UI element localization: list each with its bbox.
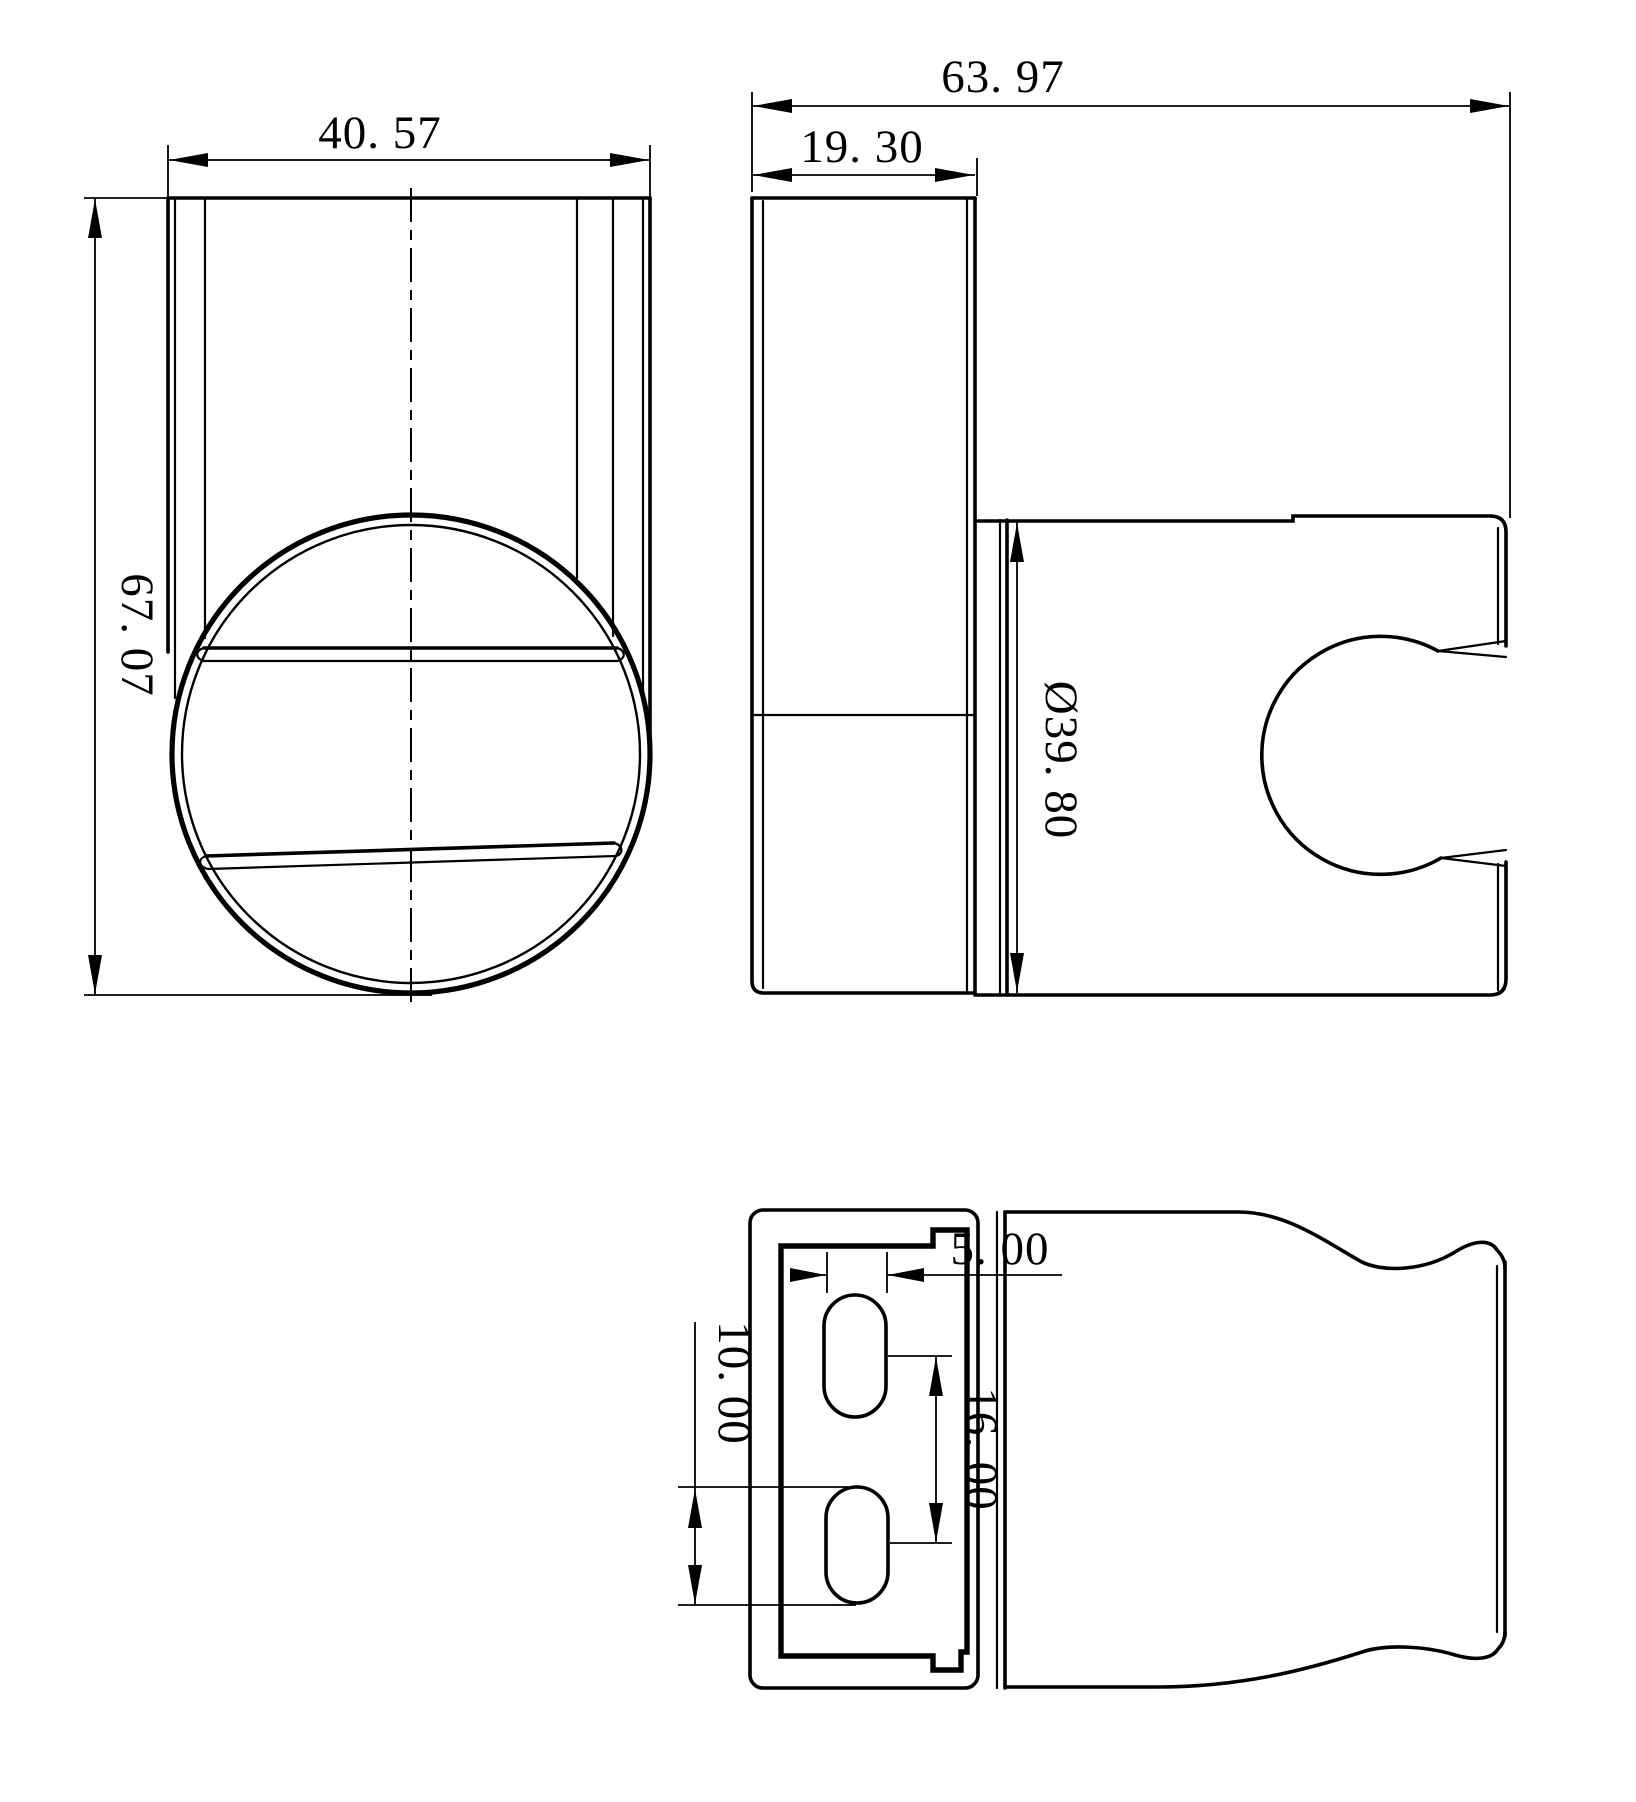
side-total-depth-label: 63. 97: [941, 51, 1065, 103]
front-view: 40. 57 67. 07: [84, 107, 650, 1002]
side-plate-depth-dimension: 19. 30: [752, 121, 977, 196]
side-total-arrow-left: [753, 99, 792, 113]
bottom-slot-spacing-arrow-bottom: [929, 1503, 943, 1542]
side-total-arrow-right: [1470, 99, 1509, 113]
bottom-view: 5. 00 10. 00 16. 00: [678, 1210, 1505, 1688]
bottom-slot-width-label: 5. 00: [951, 1223, 1050, 1275]
front-part-outline: [168, 188, 650, 1002]
side-plate-left-and-bottom: [752, 198, 975, 993]
side-diameter-arrow-bottom: [1010, 953, 1024, 992]
front-height-label: 67. 07: [111, 573, 163, 697]
bottom-mounting-slot-1: [824, 1295, 886, 1417]
bottom-plate-inner-wall: [781, 1230, 967, 1670]
side-cradle-cutout-arc: [1262, 636, 1441, 874]
side-plate-arrow-left: [753, 168, 792, 182]
bottom-slot-width-arrow-left: [790, 1268, 826, 1282]
side-cup-top-and-right-upper: [978, 516, 1506, 646]
bottom-slot-length-dimension: 10. 00: [678, 1321, 856, 1605]
bottom-slot-width-dimension: 5. 00: [790, 1223, 1062, 1293]
bottom-slot-width-extension-lines: [827, 1252, 887, 1293]
bottom-slot-length-arrow-top: [688, 1489, 702, 1528]
bottom-slot-spacing-arrow-top: [929, 1357, 943, 1396]
bottom-wall-plate: [750, 1210, 978, 1688]
side-plate-arrow-right: [935, 168, 974, 182]
bottom-plate-outer-rect: [750, 1210, 978, 1688]
side-diameter-arrow-top: [1010, 523, 1024, 562]
side-cup-diameter-dimension: Ø39. 80: [1010, 522, 1087, 993]
bottom-slot-length-label: 10. 00: [708, 1321, 760, 1445]
bottom-slot-spacing-label: 16. 00: [955, 1387, 1007, 1511]
side-plate-depth-label: 19. 30: [800, 121, 924, 173]
bottom-cup-top-edge: [1005, 1212, 1505, 1268]
bottom-slot-length-arrow-bottom: [688, 1565, 702, 1604]
side-cup-right-lower-and-bottom: [975, 862, 1506, 995]
front-height-arrow-top: [88, 199, 102, 238]
side-view: 63. 97 19. 30: [752, 51, 1510, 995]
side-cup-lower-lip: [1441, 850, 1506, 866]
front-height-dimension: 67. 07: [84, 198, 432, 995]
bottom-mounting-slot-2: [826, 1487, 888, 1603]
bottom-slot-width-arrow-right: [888, 1268, 924, 1282]
side-cup-upper-lip: [1438, 641, 1506, 657]
bottom-cup-silhouette: [997, 1212, 1505, 1688]
bottom-slot-spacing-extension-lines: [888, 1356, 952, 1543]
technical-drawing-canvas: 40. 57 67. 07: [0, 0, 1636, 1802]
front-width-arrow-right: [610, 153, 649, 167]
front-width-label: 40. 57: [318, 107, 442, 159]
drawing-sheet: 40. 57 67. 07: [0, 0, 1636, 1802]
bottom-cup-bottom-edge: [1005, 1632, 1505, 1687]
front-width-dimension: 40. 57: [168, 107, 650, 203]
front-width-arrow-left: [169, 153, 208, 167]
bottom-slot-spacing-dimension: 16. 00: [888, 1356, 1007, 1543]
side-cup-diameter-label: Ø39. 80: [1035, 681, 1087, 839]
front-height-arrow-bottom: [88, 955, 102, 994]
side-wall-plate: [752, 198, 975, 993]
